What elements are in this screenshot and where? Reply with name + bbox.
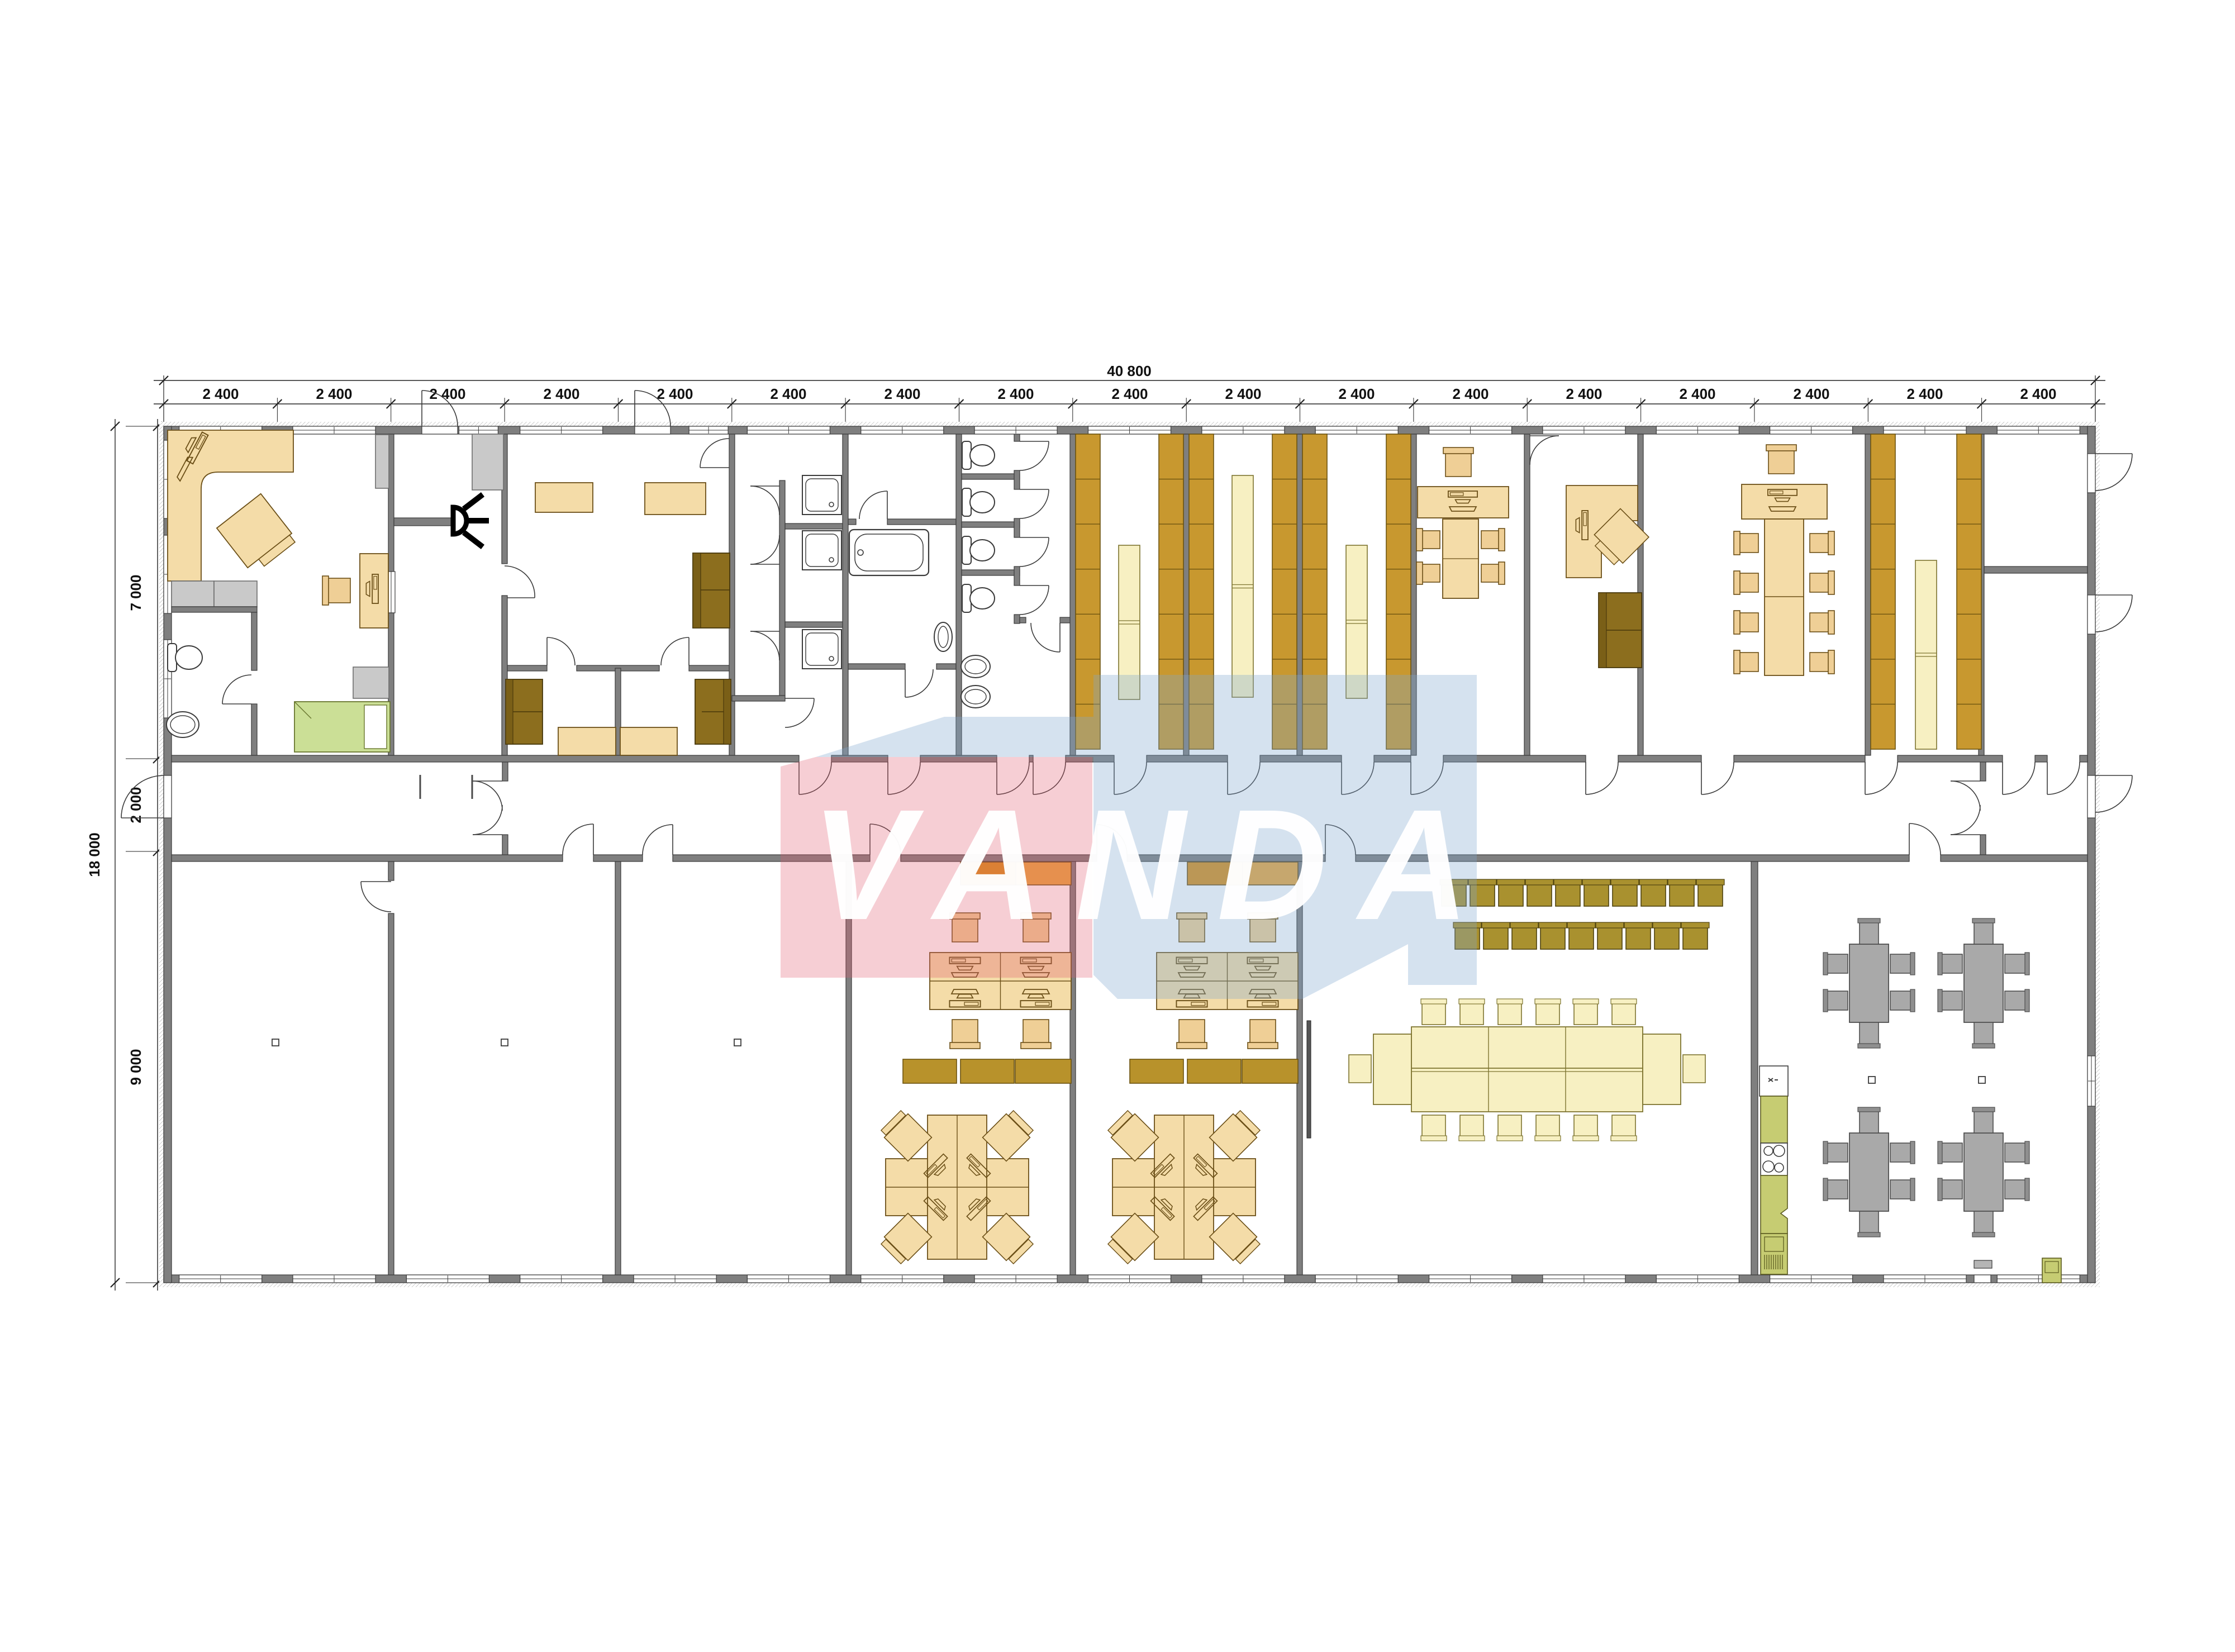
svg-text:2 400: 2 400 bbox=[1906, 385, 1943, 402]
svg-text:2 400: 2 400 bbox=[316, 385, 352, 402]
svg-text:2 400: 2 400 bbox=[1793, 385, 1829, 402]
svg-text:2 400: 2 400 bbox=[429, 385, 465, 402]
svg-text:2 400: 2 400 bbox=[202, 385, 239, 402]
svg-text:2 400: 2 400 bbox=[884, 385, 920, 402]
svg-text:2 400: 2 400 bbox=[1338, 385, 1375, 402]
svg-text:40 800: 40 800 bbox=[1107, 363, 1152, 379]
svg-text:2 400: 2 400 bbox=[543, 385, 579, 402]
svg-text:2 400: 2 400 bbox=[770, 385, 806, 402]
svg-text:2 400: 2 400 bbox=[657, 385, 693, 402]
svg-text:9 000: 9 000 bbox=[127, 1049, 144, 1085]
svg-text:18 000: 18 000 bbox=[86, 832, 103, 877]
svg-text:2 400: 2 400 bbox=[2020, 385, 2056, 402]
svg-text:2 400: 2 400 bbox=[1111, 385, 1148, 402]
svg-text:2 400: 2 400 bbox=[1452, 385, 1489, 402]
svg-text:2 400: 2 400 bbox=[1566, 385, 1602, 402]
svg-text:VANDA: VANDA bbox=[811, 777, 1501, 953]
svg-text:7 000: 7 000 bbox=[127, 574, 144, 611]
svg-text:2 400: 2 400 bbox=[997, 385, 1034, 402]
svg-text:2 400: 2 400 bbox=[1679, 385, 1715, 402]
svg-text:2 400: 2 400 bbox=[1225, 385, 1261, 402]
